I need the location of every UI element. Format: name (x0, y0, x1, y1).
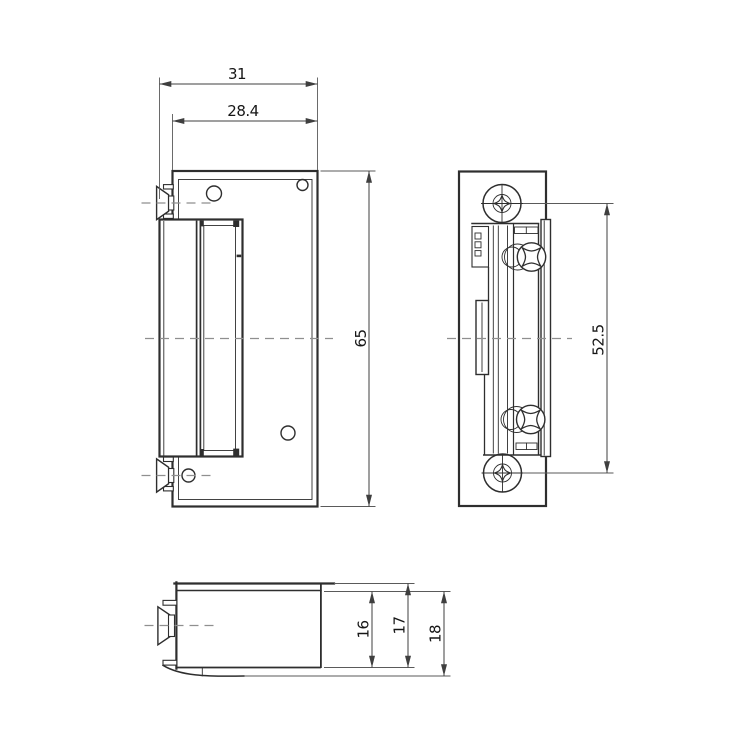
mounting-hole-top-left (207, 186, 222, 201)
technical-drawing-canvas: 31 28.4 65 (0, 0, 750, 750)
cavity-corner-notch (200, 221, 203, 227)
latch-cavity (160, 220, 243, 457)
countersunk-screw-tab-bottom-view (158, 600, 177, 665)
dim-text-screw-spacing: 52.5 (590, 324, 608, 355)
tab-step (163, 660, 177, 665)
cavity-corner-notch (233, 221, 239, 227)
dim-text-depth-with-faceplate: 17 (391, 616, 409, 634)
cavity-edge-notch (237, 255, 242, 258)
dim-text-width-overall: 31 (228, 65, 246, 83)
tab-step (164, 185, 174, 189)
tab-step (163, 600, 177, 605)
cavity-corner-notch (233, 449, 239, 456)
screw-shank (169, 615, 175, 637)
mounting-hole-top-right (297, 180, 308, 191)
dim-text-depth-overall: 18 (427, 625, 445, 643)
mounting-hole-mid-right (281, 426, 295, 440)
tab-step (164, 214, 174, 218)
dim-text-depth-body: 16 (355, 620, 373, 638)
cavity-corner-notch (200, 449, 203, 456)
dim-text-height: 65 (352, 329, 370, 347)
dim-text-width-plate: 28.4 (227, 102, 258, 120)
torx-mount-screw-bottom (482, 454, 523, 492)
tab-step (164, 487, 174, 491)
front-view: 31 28.4 65 (142, 65, 376, 507)
drawing-svg: 31 28.4 65 (0, 0, 750, 750)
side-view: 52.5 (447, 172, 614, 507)
bottom-view: 16 17 18 (145, 582, 451, 676)
countersunk-screw-tab-bottom (157, 457, 174, 492)
bottom-dimensions: 16 17 18 (324, 584, 451, 677)
tab-step (164, 457, 174, 461)
